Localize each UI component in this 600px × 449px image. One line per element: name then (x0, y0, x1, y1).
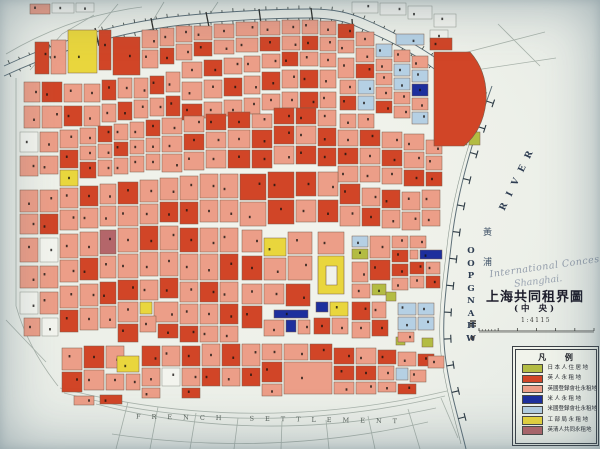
lot-number-mark (68, 177, 70, 179)
parcel (340, 114, 356, 128)
lot-number-mark (280, 208, 282, 210)
parcel (224, 58, 242, 74)
parcel (252, 150, 272, 168)
parcel (204, 80, 222, 98)
parcel (282, 52, 298, 66)
lot-number-mark (50, 197, 52, 199)
parcel (356, 64, 374, 78)
map-sheet: International Concession Shanghai. 上海共同租… (0, 0, 600, 449)
lot-number-mark (288, 115, 290, 117)
parcel (402, 192, 420, 210)
parcel (236, 22, 258, 36)
parcel (408, 6, 432, 19)
lot-number-mark (232, 109, 234, 111)
lot-number-mark (210, 354, 212, 356)
parcel (182, 368, 200, 386)
lot-number-mark (108, 131, 110, 133)
parcel (142, 50, 158, 68)
parcel (410, 250, 418, 259)
lot-number-mark (324, 156, 326, 158)
lot-number-mark (50, 249, 52, 251)
lot-number-mark (73, 216, 75, 218)
lot-number-mark (46, 93, 48, 95)
parcel (224, 78, 242, 96)
lot-number-mark (45, 53, 47, 55)
parcel (206, 114, 226, 130)
parcel (284, 362, 332, 394)
parcel (392, 250, 408, 262)
parcel (222, 368, 240, 386)
parcel (182, 82, 202, 100)
lot-number-mark (208, 210, 210, 212)
lot-number-mark (415, 62, 417, 64)
lot-number-mark (230, 213, 232, 215)
lot-number-mark (274, 351, 276, 353)
lot-number-mark (295, 44, 297, 46)
lot-number-mark (150, 240, 152, 242)
lot-number-mark (300, 134, 302, 136)
parcel (378, 366, 394, 380)
lot-number-mark (193, 331, 195, 333)
lot-number-mark (413, 40, 415, 42)
parcel (318, 148, 336, 166)
wharf-tick (113, 25, 114, 27)
parcel (146, 138, 160, 152)
lot-number-mark (417, 73, 419, 75)
parcel (118, 302, 138, 322)
parcel (176, 44, 192, 60)
parcel (160, 226, 178, 250)
lot-number-mark (375, 309, 377, 311)
lot-number-mark (369, 68, 371, 70)
lot-number-mark (208, 313, 210, 315)
parcel (160, 202, 178, 222)
lot-number-mark (296, 239, 298, 241)
lot-number-mark (374, 266, 376, 268)
lot-number-mark (360, 327, 362, 329)
lot-number-mark (224, 293, 226, 295)
parcel (396, 368, 408, 380)
lot-number-mark (291, 99, 293, 101)
lot-number-mark (88, 318, 90, 320)
parcel (264, 258, 286, 280)
parcel (194, 26, 212, 40)
parcel (150, 76, 164, 94)
parcel (264, 284, 284, 304)
lot-number-mark (247, 63, 249, 65)
lot-number-mark (44, 299, 46, 301)
parcel (330, 302, 348, 316)
lot-number-mark (168, 260, 170, 262)
parcel (60, 260, 78, 282)
lot-number-mark (127, 308, 129, 310)
lot-number-mark (190, 288, 192, 290)
parcel (42, 318, 58, 336)
parcel (162, 136, 182, 152)
parcel (64, 106, 82, 126)
parcel (422, 338, 433, 347)
lot-number-mark (144, 289, 146, 291)
parcel (386, 292, 396, 301)
pier-head (456, 255, 457, 263)
lot-number-mark (124, 365, 126, 367)
scale-ratio-label: 1:4115 (521, 317, 551, 324)
lot-number-mark (375, 196, 377, 198)
wharf-tick (422, 46, 424, 49)
parcel (180, 304, 198, 324)
parcel (434, 14, 456, 27)
parcel (40, 132, 58, 152)
lot-number-mark (421, 241, 423, 243)
lot-number-mark (129, 55, 131, 57)
parcel (160, 48, 174, 64)
parcel (220, 282, 238, 302)
parcel (202, 368, 220, 386)
lot-number-mark (367, 118, 369, 120)
parcel (426, 276, 440, 288)
wharf-tick (30, 65, 31, 67)
parcel (372, 302, 386, 318)
parcel (394, 78, 410, 90)
legend-item: 英人永租地 (522, 375, 596, 382)
parcel (420, 250, 442, 259)
parcel (60, 150, 78, 168)
lot-number-mark (288, 156, 290, 158)
parcel (100, 306, 116, 328)
lot-number-mark (428, 219, 430, 221)
lot-number-mark (306, 56, 308, 58)
lot-number-mark (104, 44, 106, 46)
parcel (228, 150, 250, 168)
legend-item-label: 英人永租地 (548, 375, 583, 382)
parcel (302, 36, 318, 50)
lot-number-mark (396, 139, 398, 141)
lot-number-mark (105, 263, 107, 265)
wharf-tick (364, 16, 365, 19)
parcel (162, 368, 180, 386)
parcel (396, 34, 424, 45)
lot-number-mark (308, 183, 310, 185)
lot-number-mark (438, 35, 440, 37)
lot-number-mark (160, 106, 162, 108)
parcel (430, 38, 452, 50)
parcel (398, 352, 416, 366)
lot-number-mark (28, 246, 30, 248)
lot-number-mark (109, 195, 111, 197)
parcel (114, 124, 128, 140)
lot-number-mark (433, 361, 435, 363)
parcel (242, 230, 262, 252)
parcel (274, 310, 308, 318)
parcel (358, 114, 374, 128)
lot-number-mark (106, 112, 108, 114)
lot-number-mark (256, 240, 258, 242)
lot-number-mark (224, 236, 226, 238)
lot-number-mark (198, 34, 200, 36)
parcel (204, 60, 222, 76)
parcel (20, 292, 38, 314)
lot-number-mark (126, 87, 128, 89)
lot-number-mark (416, 177, 418, 179)
parcel (180, 202, 198, 224)
parcel (356, 48, 374, 62)
parcel (376, 59, 392, 71)
parcel (352, 302, 370, 320)
street-line (112, 422, 428, 444)
parcel (140, 180, 158, 202)
parcel (340, 206, 360, 226)
lot-number-mark (186, 310, 188, 312)
lot-number-mark (212, 86, 214, 88)
parcel (410, 262, 424, 274)
parcel (176, 26, 192, 42)
wharf-tick (29, 53, 30, 55)
parcel (140, 316, 156, 332)
parcel (62, 372, 82, 392)
lot-number-mark (286, 313, 288, 315)
parcel (282, 92, 298, 108)
parcel (286, 320, 296, 332)
parcel (114, 142, 128, 156)
wharf-tick (49, 45, 50, 47)
lot-number-mark (408, 198, 410, 200)
wharf-tick (102, 27, 103, 30)
lot-number-mark (88, 379, 90, 381)
lot-number-mark (176, 164, 178, 166)
parcel (160, 28, 174, 46)
parcel (20, 214, 38, 234)
lot-number-mark (167, 332, 169, 334)
lot-number-mark (341, 47, 343, 49)
parcel (398, 332, 414, 342)
lot-number-mark (228, 378, 230, 380)
parcel (378, 382, 396, 392)
lot-number-mark (382, 356, 384, 358)
map-subtitle: (中 央) (514, 302, 557, 314)
parcel (40, 214, 58, 234)
lot-number-mark (109, 238, 111, 240)
parcel (282, 20, 300, 34)
parcel (206, 132, 226, 148)
wharf-tick (20, 69, 21, 71)
parcel (394, 92, 410, 104)
lot-number-mark (343, 100, 345, 102)
lot-number-mark (300, 152, 302, 154)
parcel (340, 184, 360, 204)
parcel (352, 284, 370, 298)
lot-number-mark (386, 387, 388, 389)
parcel (274, 146, 294, 164)
lot-number-mark (251, 267, 253, 269)
lot-number-mark (88, 195, 90, 197)
lot-number-mark (403, 95, 405, 97)
lot-number-mark (150, 190, 152, 192)
parcel (264, 320, 284, 336)
parcel (310, 344, 332, 360)
lot-number-mark (108, 167, 110, 169)
parcel (200, 282, 218, 302)
lot-number-mark (429, 160, 431, 162)
parcel (338, 24, 354, 38)
parcel (372, 320, 388, 336)
lot-number-mark (413, 373, 415, 375)
parcel (398, 303, 416, 315)
street-line (498, 24, 540, 66)
lot-number-mark (188, 158, 190, 160)
wharf-tick (123, 23, 124, 25)
legend-item-label: 英國登録會社永租地 (548, 386, 598, 393)
parcel (376, 87, 392, 99)
lot-number-mark (166, 352, 168, 354)
lot-number-mark (305, 264, 307, 266)
lot-number-mark (204, 333, 206, 335)
parcel (60, 286, 78, 308)
parcel (262, 344, 282, 360)
parcel (318, 110, 336, 126)
parcel (130, 140, 144, 154)
lot-number-mark (232, 357, 234, 359)
parcel (242, 284, 262, 304)
parcel (282, 70, 298, 88)
lot-number-mark (425, 254, 427, 256)
lot-number-mark (301, 353, 303, 355)
parcel (68, 30, 97, 73)
lot-number-mark (152, 161, 154, 163)
lot-number-mark (288, 132, 290, 134)
parcel (358, 96, 374, 110)
lot-number-mark (189, 92, 191, 94)
lot-number-mark (441, 18, 443, 20)
lot-number-mark (238, 138, 240, 140)
lot-number-mark (188, 391, 190, 393)
parcel (60, 310, 78, 332)
lot-number-mark (341, 327, 343, 329)
parcel (240, 174, 266, 200)
lot-number-mark (66, 194, 68, 196)
lot-number-mark (210, 121, 212, 123)
lot-number-mark (109, 319, 111, 321)
lot-number-mark (66, 317, 68, 319)
lot-number-mark (246, 313, 248, 315)
lot-number-mark (70, 90, 72, 92)
parcel (404, 170, 424, 186)
parcel (426, 262, 440, 274)
parcel (118, 206, 138, 226)
lot-number-mark (249, 216, 251, 218)
lot-number-mark (48, 143, 50, 145)
lot-number-mark (122, 212, 124, 214)
lot-number-mark (56, 113, 58, 115)
lot-number-mark (397, 284, 399, 286)
parcel (142, 388, 160, 398)
lot-number-mark (264, 140, 266, 142)
lot-number-mark (224, 188, 226, 190)
pier (470, 152, 477, 154)
lot-number-mark (269, 41, 271, 43)
parcel (398, 317, 416, 330)
parcel (262, 384, 282, 396)
parcel (296, 146, 316, 164)
lot-number-mark (347, 139, 349, 141)
parcel (426, 156, 442, 170)
lot-number-mark (365, 372, 367, 374)
river-cjk-label: 黃 浦 (483, 218, 492, 278)
lot-number-mark (234, 86, 236, 88)
lot-number-mark (26, 141, 28, 143)
lot-number-mark (369, 155, 371, 157)
lot-number-mark (44, 225, 46, 227)
parcel (422, 190, 440, 208)
lot-number-mark (44, 273, 46, 275)
lot-number-mark (145, 323, 147, 325)
lot-number-mark (153, 40, 155, 42)
wharf-tick (429, 66, 430, 68)
lot-number-mark (264, 118, 266, 120)
lot-number-mark (152, 125, 154, 127)
parcel (100, 282, 116, 304)
parcel (140, 226, 158, 250)
lot-number-mark (285, 60, 287, 62)
lot-number-mark (69, 355, 71, 357)
parcel (392, 264, 408, 276)
parcel (80, 258, 98, 280)
parcel (318, 232, 344, 254)
parcel (282, 36, 300, 50)
parcel (274, 108, 294, 124)
lot-number-mark (127, 189, 129, 191)
lot-number-mark (153, 82, 155, 84)
lot-number-mark (251, 290, 253, 292)
lot-number-mark (117, 146, 119, 148)
lot-number-mark (70, 293, 72, 295)
parcel (80, 146, 96, 160)
pier (487, 101, 494, 103)
parcel (160, 252, 178, 276)
lot-number-mark (325, 80, 327, 82)
parcel (242, 306, 262, 328)
parcel (134, 100, 148, 118)
parcel (252, 114, 272, 128)
parcel (140, 280, 158, 300)
lot-number-mark (301, 377, 303, 379)
lot-number-mark (385, 92, 387, 94)
lot-number-mark (166, 57, 168, 59)
lot-number-mark (303, 210, 305, 212)
parcel (60, 210, 78, 230)
parcel (24, 82, 40, 102)
legend-swatch (522, 426, 543, 435)
parcel (150, 98, 164, 116)
pier (458, 417, 465, 419)
wharf-tick (8, 60, 9, 63)
lot-number-mark (168, 213, 170, 215)
lot-number-mark (191, 69, 193, 71)
lot-number-mark (367, 175, 369, 177)
legend-item: 工部局永租地 (522, 417, 596, 424)
legend-box: 凡 例 日本人住居地英人永租地英國登録會社永租地米人永租地米國登録會社永租地工部… (512, 346, 599, 446)
wharf-tick (9, 73, 10, 76)
parcel (378, 350, 396, 364)
parcel (356, 382, 376, 394)
parcel (320, 21, 336, 35)
lot-number-mark (401, 270, 403, 272)
lot-number-mark (406, 324, 408, 326)
lot-number-mark (341, 370, 343, 372)
lot-number-mark (170, 102, 172, 104)
parcel (286, 284, 310, 306)
lot-number-mark (169, 83, 171, 85)
lot-number-mark (292, 26, 294, 28)
